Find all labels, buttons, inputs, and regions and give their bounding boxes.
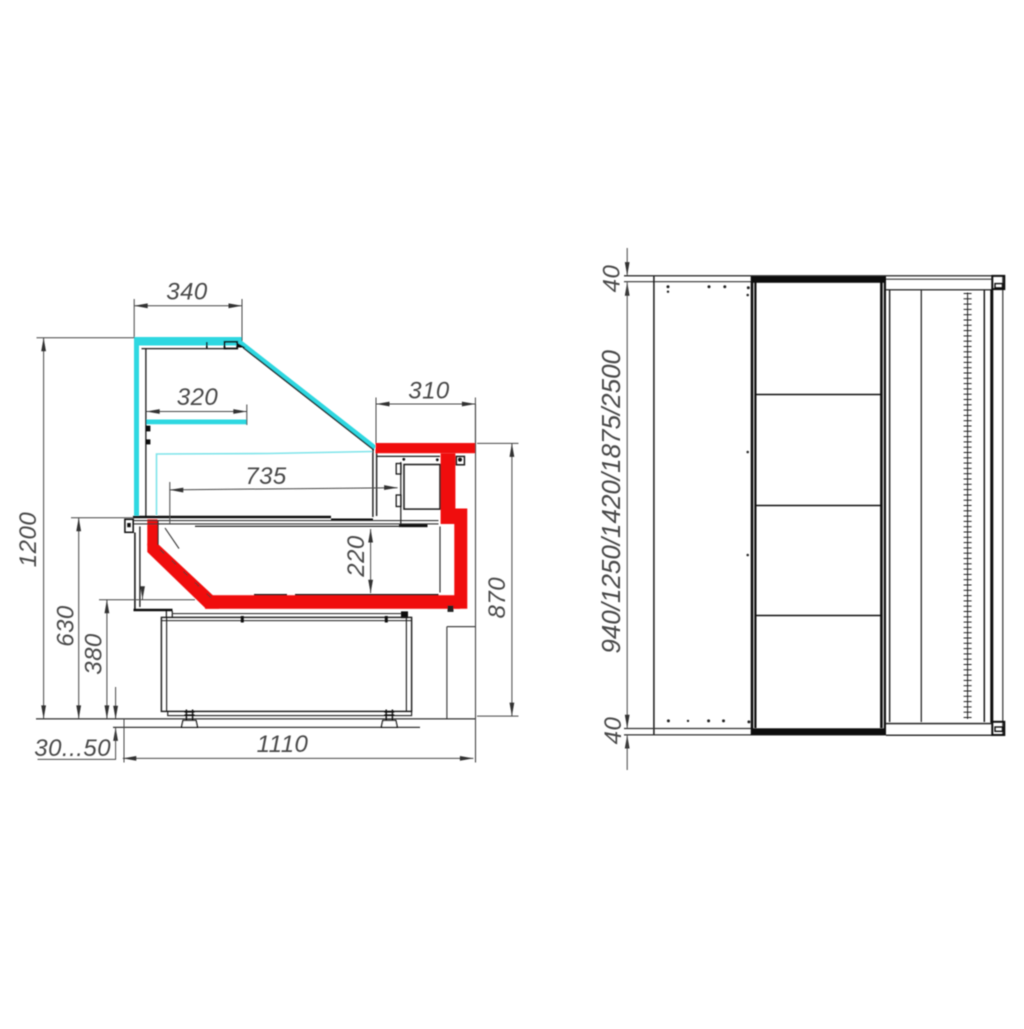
svg-text:220: 220 [343,535,370,578]
svg-text:310: 310 [408,378,450,405]
svg-text:40: 40 [600,717,627,745]
svg-text:630: 630 [52,605,79,647]
svg-text:320: 320 [177,384,219,411]
svg-text:30...50: 30...50 [34,735,111,762]
svg-text:1200: 1200 [15,512,42,568]
svg-text:940/1250/1420/1875/2500: 940/1250/1420/1875/2500 [596,349,626,653]
svg-text:340: 340 [166,279,208,306]
svg-text:40: 40 [599,265,626,293]
svg-text:380: 380 [81,633,108,675]
svg-text:870: 870 [484,577,511,619]
svg-text:1110: 1110 [257,731,309,758]
svg-text:735: 735 [245,463,287,490]
